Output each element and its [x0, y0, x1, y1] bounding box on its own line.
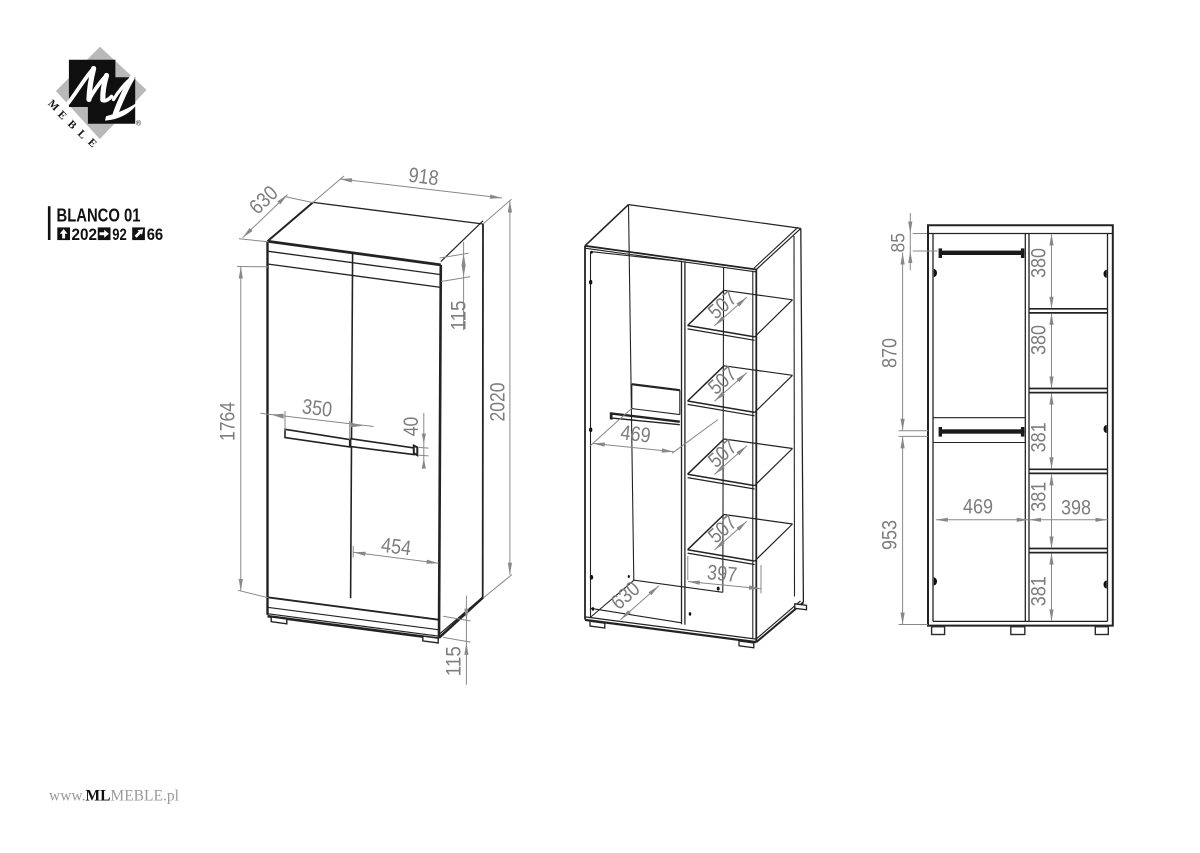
svg-text:85: 85 — [888, 233, 910, 253]
svg-text:350: 350 — [301, 395, 334, 421]
svg-text:918: 918 — [407, 164, 440, 190]
svg-text:381: 381 — [1028, 576, 1051, 606]
svg-text:380: 380 — [1028, 325, 1051, 355]
svg-text:398: 398 — [1061, 497, 1091, 520]
svg-text:40: 40 — [400, 417, 423, 437]
svg-text:2020: 2020 — [487, 383, 510, 422]
svg-text:115: 115 — [443, 646, 466, 676]
svg-text:469: 469 — [963, 496, 993, 519]
svg-text:397: 397 — [706, 561, 738, 587]
svg-text:953: 953 — [879, 520, 902, 550]
svg-text:202: 202 — [72, 226, 98, 244]
svg-text:870: 870 — [879, 338, 902, 368]
svg-text:380: 380 — [1028, 248, 1051, 278]
svg-text:469: 469 — [619, 421, 652, 447]
svg-text:115: 115 — [447, 301, 470, 331]
svg-text:BLANCO 01: BLANCO 01 — [57, 204, 141, 225]
svg-text:1764: 1764 — [217, 402, 240, 441]
svg-text:92: 92 — [112, 226, 127, 244]
svg-text:66: 66 — [147, 226, 164, 244]
svg-text:381: 381 — [1028, 482, 1051, 512]
svg-text:454: 454 — [380, 534, 413, 561]
svg-text:®: ® — [136, 119, 142, 127]
svg-text:www.MLMEBLE.pl: www.MLMEBLE.pl — [49, 788, 179, 805]
svg-text:381: 381 — [1028, 422, 1051, 452]
